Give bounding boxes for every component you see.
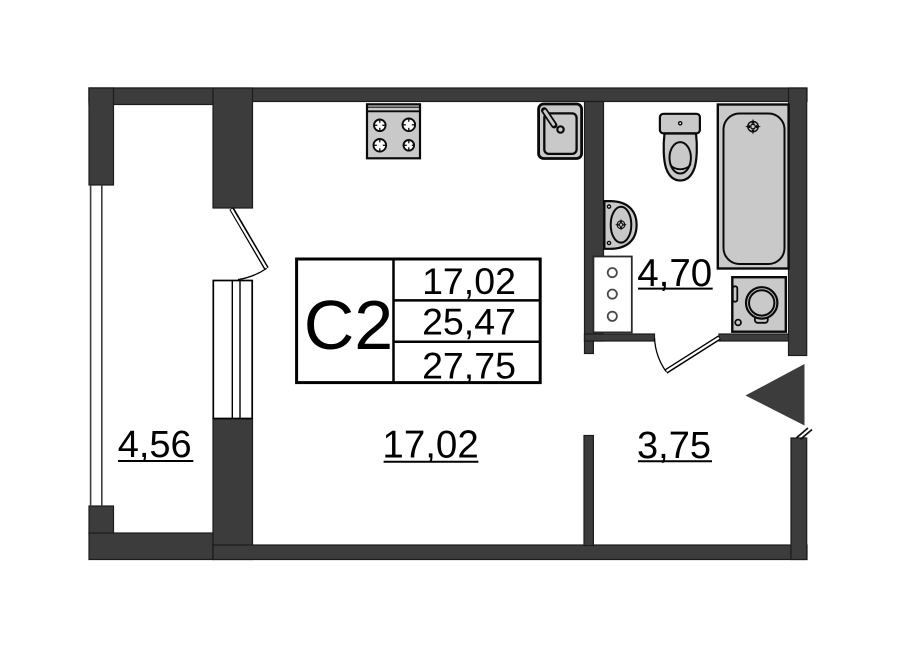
svg-text:4,56: 4,56 [118,424,192,466]
svg-text:17,02: 17,02 [422,260,516,302]
svg-text:27,75: 27,75 [422,344,516,386]
svg-text:C2: C2 [304,286,393,364]
svg-text:17,02: 17,02 [382,424,478,467]
svg-text:25,47: 25,47 [422,301,516,343]
